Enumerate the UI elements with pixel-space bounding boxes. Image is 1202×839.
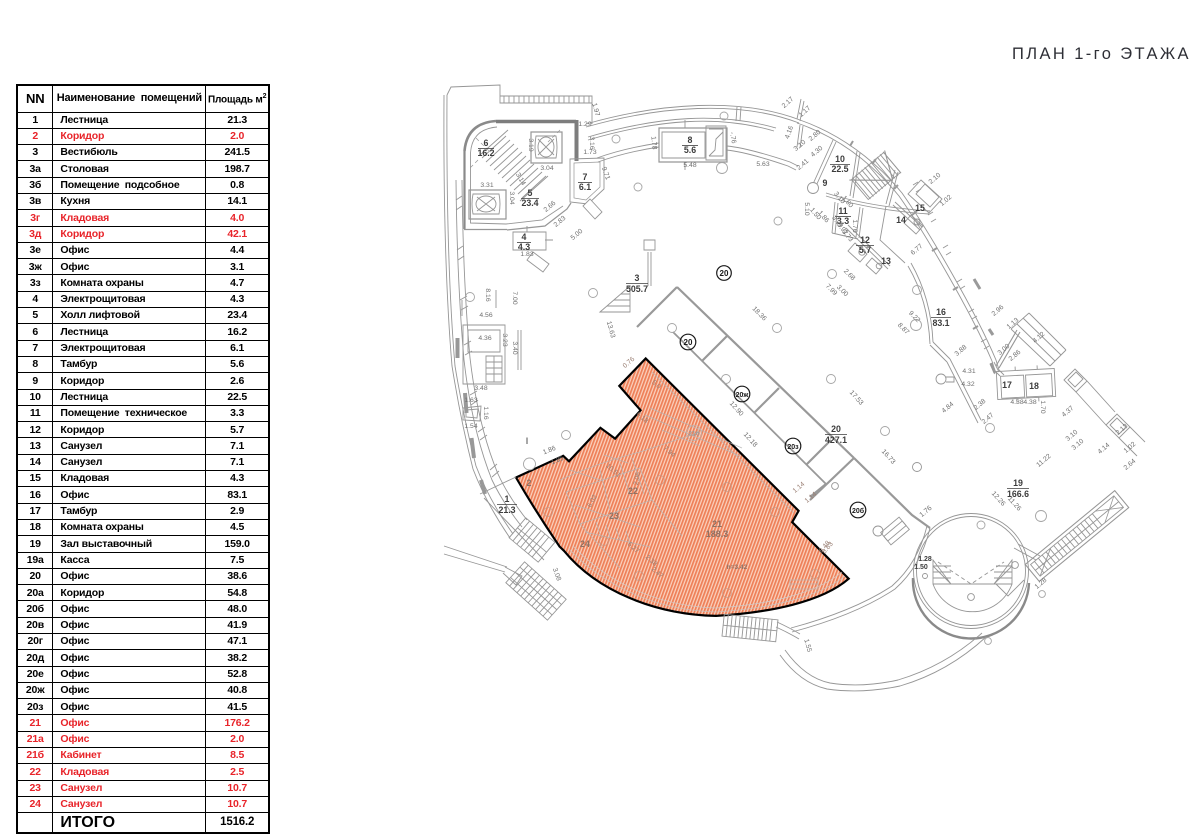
svg-text:10: 10: [835, 154, 845, 164]
svg-text:20б: 20б: [852, 507, 865, 515]
svg-text:188.3: 188.3: [706, 529, 729, 539]
svg-text:3.19: 3.19: [527, 138, 534, 151]
svg-text:11: 11: [838, 206, 847, 216]
svg-text:21: 21: [712, 519, 722, 529]
svg-text:1.54: 1.54: [464, 423, 477, 430]
svg-text:4: 4: [522, 232, 527, 242]
svg-text:4.30: 4.30: [810, 145, 825, 159]
svg-text:2.68: 2.68: [842, 268, 856, 282]
svg-text:17.53: 17.53: [848, 389, 865, 406]
svg-text:4.31: 4.31: [962, 368, 975, 375]
svg-text:1.76: 1.76: [919, 505, 934, 519]
svg-text:5.48: 5.48: [683, 162, 696, 169]
svg-text:4.37: 4.37: [1061, 405, 1076, 419]
svg-text:23: 23: [609, 511, 619, 521]
svg-text:1.86: 1.86: [542, 445, 557, 457]
svg-text:3.08: 3.08: [551, 567, 562, 582]
svg-text:2.38: 2.38: [973, 398, 988, 412]
svg-text:12.90: 12.90: [728, 400, 745, 417]
svg-text:3.10: 3.10: [793, 139, 808, 153]
svg-text:16.73: 16.73: [880, 448, 897, 465]
svg-text:2.86: 2.86: [1008, 349, 1023, 363]
svg-text:3.23: 3.23: [501, 333, 508, 346]
svg-text:5.6: 5.6: [684, 145, 696, 155]
svg-text:5.00: 5.00: [570, 228, 585, 242]
svg-text:1.73: 1.73: [583, 149, 596, 156]
svg-text:2.10: 2.10: [928, 172, 943, 186]
svg-text:1.76: 1.76: [851, 219, 858, 232]
svg-text:5.63: 5.63: [756, 161, 769, 168]
svg-text:9: 9: [823, 178, 828, 188]
svg-text:1.16: 1.16: [482, 406, 489, 419]
svg-text:4.38: 4.38: [1023, 399, 1036, 406]
svg-text:12: 12: [860, 235, 870, 245]
svg-text:1.02: 1.02: [1123, 441, 1138, 455]
svg-text:9.22: 9.22: [907, 310, 921, 324]
svg-text:1.02: 1.02: [939, 194, 954, 208]
svg-text:12.26: 12.26: [990, 490, 1007, 507]
svg-text:1.83: 1.83: [520, 251, 533, 258]
svg-text:3.88: 3.88: [954, 344, 969, 358]
svg-text:15: 15: [915, 203, 925, 213]
svg-text:16.2: 16.2: [477, 148, 494, 158]
svg-text:19: 19: [1013, 478, 1023, 488]
svg-text:4.38: 4.38: [1010, 399, 1023, 406]
svg-text:3.48: 3.48: [474, 385, 487, 392]
svg-text:6: 6: [484, 138, 489, 148]
svg-text:1.70: 1.70: [1039, 400, 1046, 413]
svg-text:18.36: 18.36: [751, 305, 768, 322]
svg-text:7.00: 7.00: [511, 291, 518, 304]
svg-text:4.32: 4.32: [961, 381, 974, 388]
svg-text:1.50: 1.50: [914, 564, 928, 571]
svg-text:21б: 21б: [688, 430, 699, 438]
svg-text:2.83: 2.83: [553, 215, 568, 229]
svg-text:3.04: 3.04: [508, 191, 515, 204]
svg-text:13.63: 13.63: [605, 320, 616, 338]
svg-text:3.40: 3.40: [511, 341, 518, 354]
svg-text:11.22: 11.22: [1035, 453, 1052, 469]
svg-text:4.84: 4.84: [941, 401, 956, 415]
svg-text:3.16: 3.16: [588, 136, 595, 149]
svg-text:20: 20: [831, 424, 841, 434]
svg-text:4.56: 4.56: [479, 312, 492, 319]
svg-text:1.14: 1.14: [792, 481, 807, 495]
svg-text:83.1: 83.1: [932, 318, 949, 328]
svg-text:3: 3: [635, 273, 640, 283]
svg-text:8.87: 8.87: [896, 322, 910, 336]
svg-text:3.14: 3.14: [514, 172, 527, 187]
svg-text:1.55: 1.55: [802, 638, 812, 653]
svg-text:1.63: 1.63: [464, 397, 477, 404]
svg-text:24: 24: [580, 539, 590, 549]
svg-text:4.36: 4.36: [478, 335, 491, 342]
svg-text:7: 7: [583, 172, 588, 182]
svg-text:3.00: 3.00: [997, 343, 1012, 357]
svg-text:17: 17: [1002, 380, 1012, 390]
svg-text:9.71: 9.71: [600, 166, 611, 181]
svg-text:5.10: 5.10: [803, 202, 810, 215]
svg-text:427.1: 427.1: [825, 435, 847, 445]
svg-text:20: 20: [720, 269, 729, 278]
svg-text:1: 1: [505, 494, 510, 504]
svg-text:5: 5: [528, 188, 533, 198]
svg-text:1.28: 1.28: [918, 556, 932, 563]
svg-text:21.3: 21.3: [498, 505, 515, 515]
svg-text:20: 20: [684, 338, 693, 347]
svg-text:3.10: 3.10: [1071, 438, 1086, 452]
svg-text:6.1: 6.1: [579, 182, 591, 192]
svg-text:3.31: 3.31: [480, 182, 493, 189]
svg-text:h=3.42: h=3.42: [727, 564, 748, 571]
svg-text:4.14: 4.14: [1097, 442, 1112, 456]
svg-text:16: 16: [936, 307, 946, 317]
svg-text:2.66: 2.66: [543, 200, 558, 214]
svg-text:22: 22: [628, 486, 638, 496]
svg-text:5.7: 5.7: [859, 245, 871, 255]
svg-text:505.7: 505.7: [626, 284, 648, 294]
svg-text:8: 8: [688, 135, 693, 145]
svg-text:20з: 20з: [787, 444, 799, 451]
svg-text:0.76: 0.76: [622, 356, 637, 370]
svg-text:18: 18: [1029, 381, 1039, 391]
svg-text:1.13: 1.13: [1006, 317, 1021, 331]
svg-text:12.18: 12.18: [742, 431, 759, 448]
svg-text:4.16: 4.16: [784, 125, 795, 140]
svg-text:6.77: 6.77: [910, 243, 925, 257]
svg-text:14: 14: [896, 215, 906, 225]
svg-text:2: 2: [526, 478, 531, 488]
svg-text:2.80: 2.80: [808, 129, 823, 143]
svg-text:22.5: 22.5: [831, 164, 848, 174]
svg-text:1.17: 1.17: [798, 105, 813, 119]
svg-text:3.04: 3.04: [540, 165, 553, 172]
svg-text:I: I: [526, 436, 529, 446]
svg-text:1.29: 1.29: [578, 121, 591, 128]
svg-text:1.78: 1.78: [649, 136, 657, 150]
svg-text:20ж: 20ж: [736, 392, 750, 399]
svg-text:4.12: 4.12: [1032, 331, 1047, 345]
svg-text:2.64: 2.64: [1123, 458, 1138, 472]
svg-text:2.96: 2.96: [991, 304, 1006, 318]
svg-text:1.28: 1.28: [1034, 577, 1049, 591]
svg-text:8.16: 8.16: [484, 288, 491, 301]
svg-text:2.17: 2.17: [781, 96, 796, 110]
svg-text:13: 13: [881, 256, 891, 266]
svg-text:-.76: -.76: [728, 131, 737, 144]
svg-text:2.41: 2.41: [796, 158, 811, 172]
svg-text:23.4: 23.4: [521, 198, 538, 208]
